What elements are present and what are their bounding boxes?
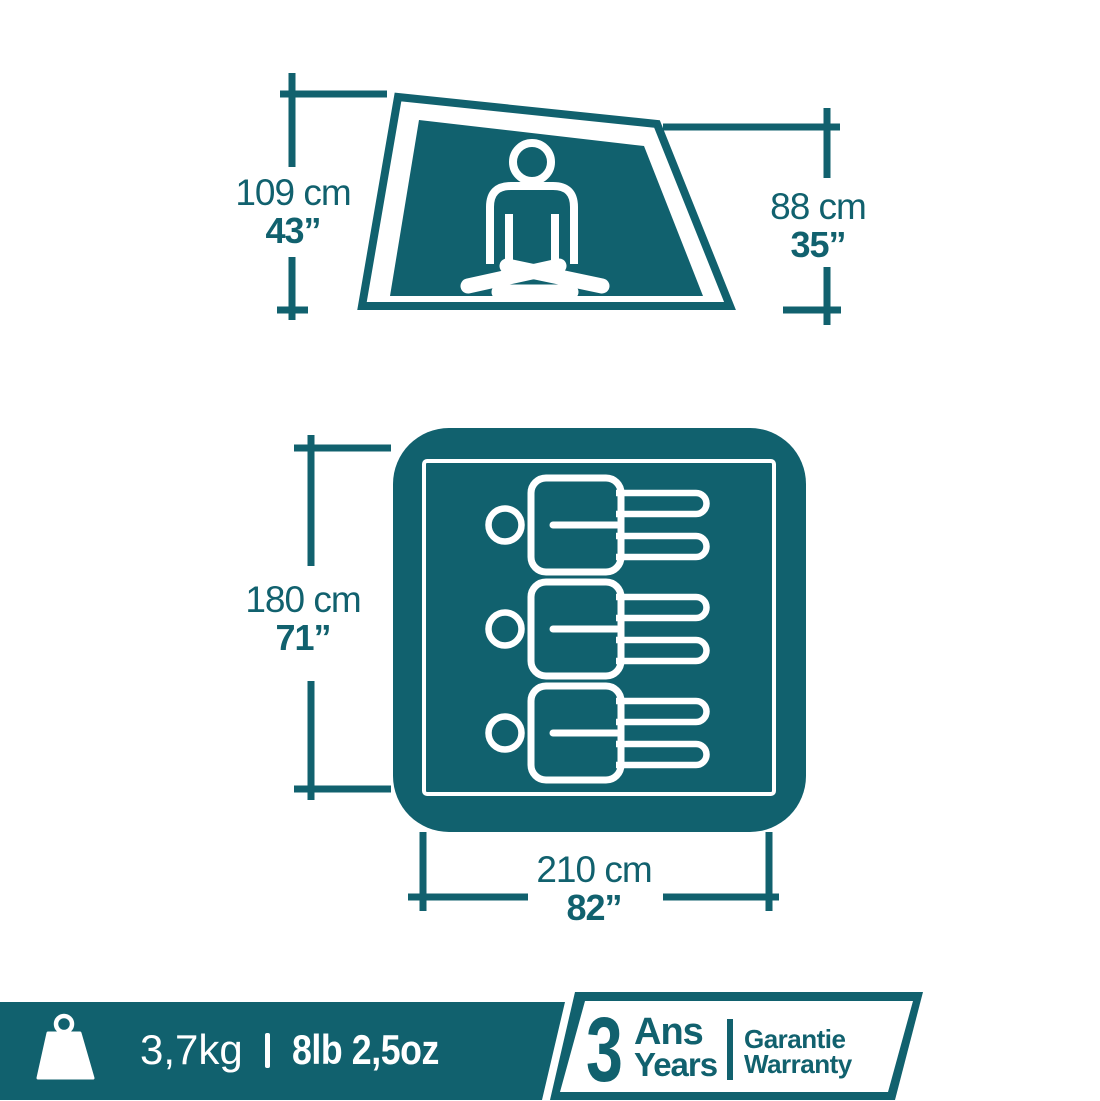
- warranty-units: Ans Years: [634, 1014, 717, 1080]
- warranty-unit-fr: Ans: [634, 1014, 717, 1050]
- side-height-label: 109 cm 43”: [235, 174, 350, 250]
- weight-divider: [265, 1033, 270, 1068]
- floor-length-label: 180 cm 71”: [245, 581, 360, 657]
- spec-diagram-canvas: [0, 0, 1100, 1100]
- floor-width-inches: 82”: [536, 889, 651, 927]
- side-height-cm: 109 cm: [235, 174, 350, 212]
- tent-floor-plan: [393, 428, 806, 832]
- warranty-years: 3: [586, 1004, 623, 1096]
- warranty-labels: Garantie Warranty: [744, 1027, 852, 1077]
- warranty-unit-en: Years: [634, 1050, 717, 1080]
- warranty-divider: [727, 1019, 733, 1080]
- floor-width-label: 210 cm 82”: [536, 851, 651, 927]
- floor-width-cm: 210 cm: [536, 851, 651, 889]
- floor-length-inches: 71”: [245, 619, 360, 657]
- side-rear-height-cm: 88 cm: [770, 188, 866, 226]
- side-rear-height-inches: 35”: [770, 226, 866, 264]
- weight-spec: 3,7kg 8lb 2,5oz: [140, 1028, 465, 1072]
- floor-length-cm: 180 cm: [245, 581, 360, 619]
- warranty-label-en: Warranty: [744, 1052, 852, 1077]
- weight-imperial: 8lb 2,5oz: [292, 1026, 439, 1074]
- side-height-inches: 43”: [235, 212, 350, 250]
- weight-metric: 3,7kg: [140, 1026, 243, 1074]
- side-rear-height-label: 88 cm 35”: [770, 188, 866, 264]
